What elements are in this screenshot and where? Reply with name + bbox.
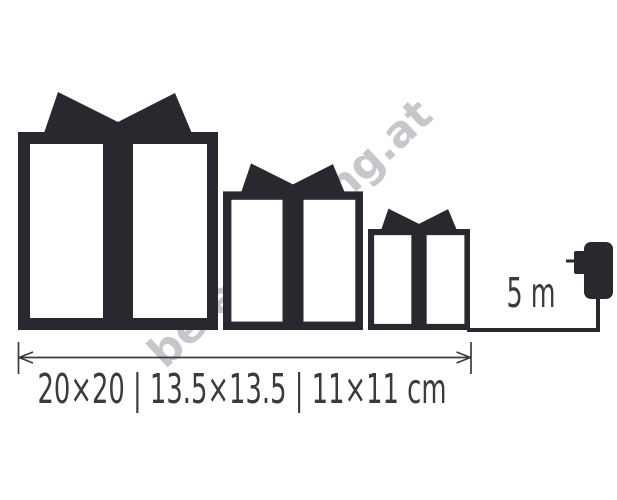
gift-box-medium-icon	[223, 163, 363, 330]
dimensions-label: 20×20 | 13.5×13.5 | 11×11 cm	[37, 366, 446, 414]
product-dimension-diagram: beleuchtung.at 5 m 20×20 | 13.5×13.5 | 1…	[0, 0, 617, 500]
gift-box-small-icon	[368, 209, 470, 330]
power-adapter-icon	[566, 242, 613, 299]
adapter-body	[584, 242, 613, 299]
diagram-canvas: beleuchtung.at 5 m 20×20 | 13.5×13.5 | 1…	[0, 0, 617, 500]
cable-length-label: 5 m	[506, 270, 555, 318]
gift-box-large-icon	[18, 92, 218, 330]
